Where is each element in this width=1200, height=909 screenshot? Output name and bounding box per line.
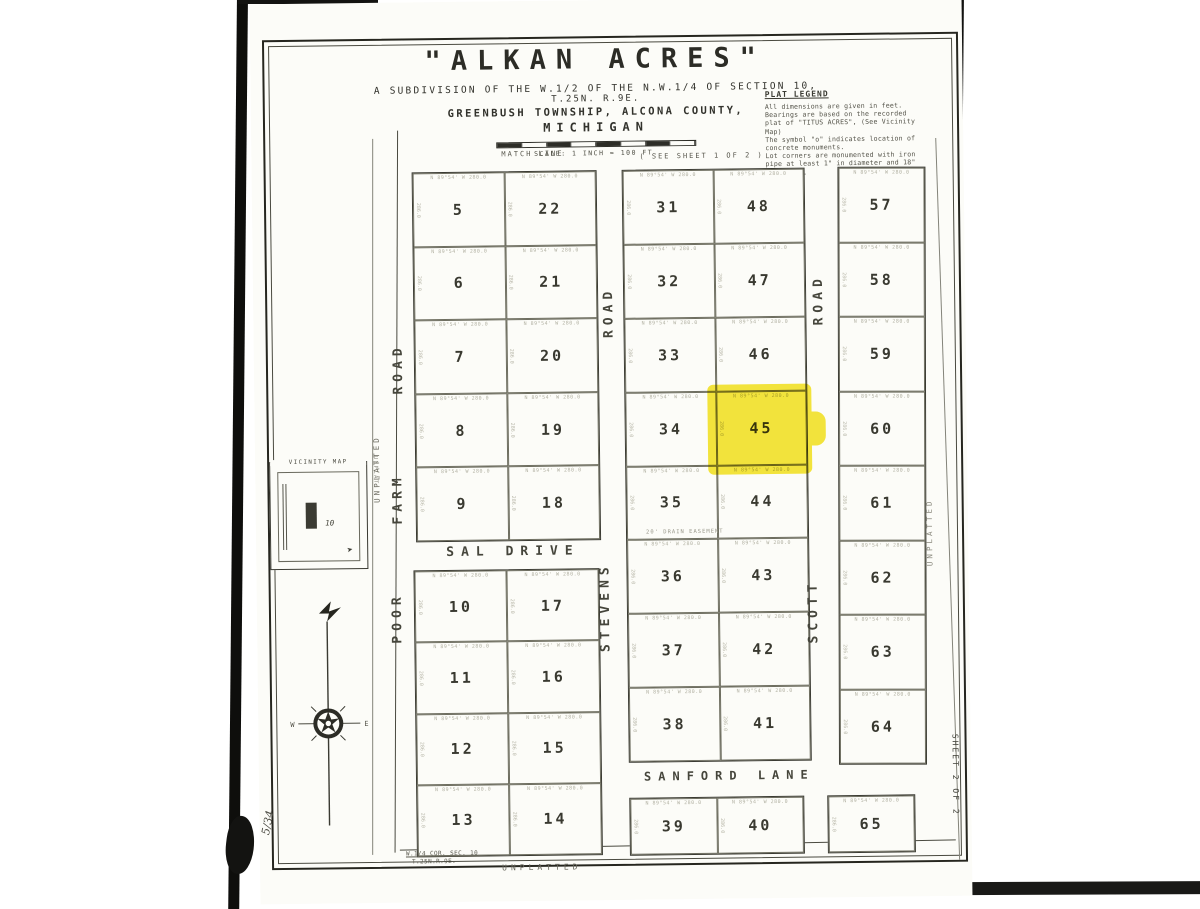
- survey-annotation: N 89°54' W 280.0: [715, 245, 804, 252]
- survey-annotation: N 89°54' W 280.0: [625, 246, 714, 253]
- survey-dimension: 286.0: [419, 497, 425, 512]
- survey-dimension: 286.0: [630, 643, 636, 658]
- survey-annotation: N 89°54' W 280.0: [507, 571, 597, 578]
- lot-block-right-bottom: N 89°54' W 280.0286.065: [827, 794, 916, 853]
- road-label-stevens-road: ROAD: [601, 276, 617, 338]
- vicinity-section-number: 10: [325, 518, 334, 527]
- unplatted-label-south: UNPLATTED: [502, 862, 581, 872]
- lot-cell-58: N 89°54' W 280.0286.058: [839, 242, 925, 317]
- survey-annotation: N 89°54' W 280.0: [417, 469, 507, 476]
- vicinity-arrow-icon: ➤: [346, 545, 354, 557]
- survey-dimension: 286.0: [842, 719, 848, 734]
- lot-cell-34: N 89°54' W 280.0286.034: [625, 391, 716, 466]
- survey-dimension: 286.0: [625, 200, 631, 215]
- survey-annotation: N 89°54' W 280.0: [840, 468, 924, 474]
- lot-cell-17: N 89°54' W 280.0286.017: [506, 569, 599, 641]
- lot-block-left-upper: N 89°54' W 280.0286.05N 89°54' W 280.028…: [412, 170, 602, 542]
- lot-cell-19: N 89°54' W 280.0286.019: [507, 392, 599, 467]
- lot-number: 22: [538, 199, 562, 217]
- lot-cell-13: N 89°54' W 280.0286.013: [417, 784, 510, 856]
- lot-cell-37: N 89°54' W 280.0286.037: [628, 613, 719, 688]
- quarter-corner-note: W.1/4 COR. SEC. 10: [406, 850, 478, 858]
- lot-cell-38: N 89°54' W 280.0286.038: [629, 687, 720, 762]
- survey-dimension: 286.0: [841, 197, 847, 212]
- survey-annotation: N 89°54' W 280.0: [841, 691, 925, 697]
- lot-cell-8: N 89°54' W 280.0286.08: [415, 393, 507, 468]
- lot-number: 42: [752, 640, 776, 658]
- subtitle-state: MICHIGAN: [361, 117, 831, 137]
- vicinity-map: VICINITY MAP 10 ➤ UNPLAT-: [269, 461, 368, 570]
- survey-annotation: N 89°54' W 280.0: [841, 617, 925, 623]
- survey-annotation: N 89°54' W 280.0: [505, 173, 595, 180]
- survey-annotation: N 89°54' W 280.0: [508, 394, 598, 401]
- lot-number: 18: [542, 494, 566, 512]
- survey-annotation: N 89°54' W 280.0: [415, 321, 505, 328]
- lot-cell-40: N 89°54' W 280.0286.040: [717, 797, 804, 854]
- lot-number: 46: [748, 345, 772, 363]
- lot-cell-39: N 89°54' W 280.0286.039: [630, 798, 717, 855]
- lot-number: 15: [542, 739, 566, 757]
- lot-number: 21: [539, 273, 563, 291]
- lot-cell-6: N 89°54' W 280.0286.06: [414, 246, 506, 321]
- survey-dimension: 286.0: [626, 274, 632, 289]
- lot-cell-14: N 89°54' W 280.0286.014: [509, 783, 602, 855]
- lot-number: 14: [543, 810, 567, 828]
- survey-dimension: 286.0: [508, 349, 514, 364]
- lot-number: 39: [662, 817, 686, 835]
- survey-annotation: N 89°54' W 280.0: [506, 247, 596, 254]
- plat-legend: PLAT LEGEND All dimensions are given in …: [765, 88, 946, 177]
- north-arrow-compass: W E: [275, 595, 388, 836]
- survey-dimension: 286.0: [841, 570, 847, 585]
- scan-edge-blob: [223, 815, 258, 876]
- lot-number: 5: [453, 201, 465, 219]
- see-sheet-label: ( SEE SHEET 1 OF 2 ): [639, 151, 763, 161]
- survey-dimension: 286.0: [417, 599, 423, 614]
- lot-number: 20: [540, 347, 564, 365]
- survey-annotation: N 89°54' W 280.0: [631, 800, 716, 807]
- lot-cell-36: N 89°54' W 280.0286.036: [627, 539, 718, 614]
- survey-annotation: N 89°54' W 280.0: [415, 248, 505, 255]
- sheet-number-label: SHEET 2 OF 2: [950, 734, 960, 834]
- lot-block-middle: N 89°54' W 280.0286.031N 89°54' W 280.02…: [622, 168, 812, 763]
- survey-dimension: 286.0: [841, 495, 847, 510]
- lot-number: 8: [455, 421, 467, 439]
- lot-number: 62: [870, 568, 894, 586]
- survey-annotation: N 89°54' W 280.0: [508, 642, 598, 649]
- vicinity-plat-location: [306, 503, 317, 529]
- road-label-stevens: STEVENS: [597, 552, 613, 652]
- lot-number: 36: [661, 567, 685, 585]
- lot-cell-9: N 89°54' W 280.0286.09: [416, 467, 508, 542]
- scan-edge-left-bar: [228, 0, 248, 909]
- survey-dimension: 286.0: [418, 671, 424, 686]
- lot-number: 61: [870, 494, 894, 512]
- survey-annotation: N 89°54' W 280.0: [625, 319, 714, 326]
- survey-annotation: N 89°54' W 280.0: [414, 174, 504, 181]
- plat-sheet: "ALKAN ACRES" A SUBDIVISION OF THE W.1/2…: [250, 0, 973, 904]
- survey-annotation: N 89°54' W 280.0: [418, 786, 508, 793]
- highlight-overlay: [707, 383, 813, 474]
- vicinity-map-drawing: 10 ➤: [277, 471, 360, 562]
- lot-number: 57: [869, 196, 893, 214]
- survey-dimension: 286.0: [627, 348, 633, 363]
- survey-annotation: N 89°54' W 280.0: [416, 644, 506, 651]
- title-block: "ALKAN ACRES" A SUBDIVISION OF THE W.1/2…: [360, 41, 831, 160]
- lot-cell-46: N 89°54' W 280.0286.046: [715, 316, 806, 391]
- survey-dimension: 286.0: [719, 818, 725, 833]
- survey-dimension: 286.0: [841, 346, 847, 361]
- lot-cell-41: N 89°54' W 280.0286.041: [719, 686, 810, 761]
- lot-block-middle-bottom: N 89°54' W 280.0286.039N 89°54' W 280.02…: [629, 796, 805, 856]
- survey-annotation: N 89°54' W 280.0: [510, 785, 600, 792]
- lot-number: 19: [541, 420, 565, 438]
- survey-annotation: N 89°54' W 280.0: [626, 393, 715, 400]
- scanned-plat-document: "ALKAN ACRES" A SUBDIVISION OF THE W.1/2…: [0, 0, 1200, 900]
- survey-dimension: 286.0: [629, 496, 635, 511]
- lot-cell-31: N 89°54' W 280.0286.031: [623, 170, 714, 245]
- lot-number: 32: [657, 272, 681, 290]
- lot-number: 37: [662, 641, 686, 659]
- road-label-farm: FARM: [390, 449, 406, 525]
- easement-note: 20' DRAIN EASEMENT: [646, 529, 724, 536]
- survey-dimension: 286.0: [716, 273, 722, 288]
- lot-cell-33: N 89°54' W 280.0286.033: [624, 317, 715, 392]
- lot-number: 47: [748, 271, 772, 289]
- survey-dimension: 286.0: [509, 598, 515, 613]
- svg-text:W: W: [290, 721, 295, 729]
- lot-cell-16: N 89°54' W 280.0286.016: [507, 640, 600, 712]
- lot-block-right: N 89°54' W 280.0286.057N 89°54' W 280.02…: [837, 167, 927, 765]
- survey-annotation: N 89°54' W 280.0: [840, 542, 924, 548]
- lot-number: 12: [451, 740, 475, 758]
- lot-cell-48: N 89°54' W 280.0286.048: [713, 169, 804, 244]
- road-label-poor: POOR: [389, 558, 405, 644]
- survey-dimension: 286.0: [416, 276, 422, 291]
- lot-cell-7: N 89°54' W 280.0286.07: [414, 319, 506, 394]
- lot-cell-11: N 89°54' W 280.0286.011: [415, 642, 508, 714]
- lot-cell-21: N 89°54' W 280.0286.021: [505, 245, 597, 320]
- survey-dimension: 286.0: [509, 422, 515, 437]
- lot-cell-57: N 89°54' W 280.0286.057: [838, 168, 924, 243]
- lot-cell-65: N 89°54' W 280.0286.065: [828, 795, 915, 852]
- lot-cell-32: N 89°54' W 280.0286.032: [623, 244, 714, 319]
- lot-number: 64: [871, 717, 895, 735]
- township-range-note: T.25N.R.9E.: [412, 858, 456, 866]
- survey-dimension: 286.0: [633, 819, 639, 834]
- survey-annotation: N 89°54' W 280.0: [629, 615, 718, 622]
- lot-number: 7: [454, 348, 466, 366]
- survey-annotation: N 89°54' W 280.0: [840, 319, 924, 325]
- lot-number: 60: [870, 419, 894, 437]
- lot-cell-64: N 89°54' W 280.0286.064: [840, 689, 926, 764]
- survey-annotation: N 89°54' W 280.0: [829, 797, 913, 804]
- survey-annotation: N 89°54' W 280.0: [840, 244, 924, 250]
- lot-cell-44: N 89°54' W 280.0286.044: [717, 464, 808, 539]
- lot-number: 48: [747, 197, 771, 215]
- legend-lines: All dimensions are given in feet.Bearing…: [765, 101, 946, 177]
- lot-number: 9: [456, 495, 468, 513]
- survey-annotation: N 89°54' W 280.0: [507, 320, 597, 327]
- survey-dimension: 286.0: [629, 569, 635, 584]
- survey-dimension: 286.0: [415, 203, 421, 218]
- compass-rose-icon: W E: [275, 595, 388, 836]
- survey-annotation: N 89°54' W 280.0: [630, 689, 719, 696]
- survey-annotation: N 89°54' W 280.0: [716, 318, 805, 325]
- legend-title: PLAT LEGEND: [765, 88, 945, 99]
- lot-number: 34: [659, 420, 683, 438]
- lot-number: 58: [870, 270, 894, 288]
- survey-dimension: 286.0: [722, 716, 728, 731]
- lot-number: 6: [454, 274, 466, 292]
- survey-annotation: N 89°54' W 280.0: [624, 172, 713, 179]
- survey-annotation: N 89°54' W 280.0: [627, 467, 716, 474]
- survey-dimension: 286.0: [721, 642, 727, 657]
- lot-cell-12: N 89°54' W 280.0286.012: [416, 713, 509, 785]
- survey-dimension: 286.0: [511, 741, 517, 756]
- lot-cell-45: N 89°54' W 280.0286.045: [716, 390, 807, 465]
- survey-dimension: 286.0: [628, 422, 634, 437]
- survey-annotation: N 89°54' W 280.0: [509, 714, 599, 721]
- survey-dimension: 286.0: [511, 812, 517, 827]
- road-label-sanford-lane: SANFORD LANE: [644, 768, 815, 784]
- survey-dimension: 286.0: [418, 423, 424, 438]
- lot-cell-42: N 89°54' W 280.0286.042: [718, 612, 809, 687]
- survey-dimension: 286.0: [719, 495, 725, 510]
- survey-dimension: 286.0: [720, 568, 726, 583]
- survey-dimension: 286.0: [417, 350, 423, 365]
- scale-bar: [496, 140, 696, 148]
- lot-number: 63: [871, 643, 895, 661]
- road-label-road-west: ROAD: [390, 319, 406, 395]
- lot-cell-22: N 89°54' W 280.0286.022: [504, 171, 596, 246]
- survey-dimension: 286.0: [715, 199, 721, 214]
- survey-annotation: N 89°54' W 280.0: [628, 541, 717, 548]
- survey-annotation: N 89°54' W 280.0: [840, 393, 924, 399]
- survey-dimension: 286.0: [717, 347, 723, 362]
- lot-number: 10: [449, 597, 473, 615]
- lot-cell-47: N 89°54' W 280.0286.047: [714, 242, 805, 317]
- survey-annotation: N 89°54' W 280.0: [719, 540, 808, 547]
- lot-number: 33: [658, 346, 682, 364]
- match-line-label: MATCH LINE: [501, 150, 563, 159]
- lot-cell-20: N 89°54' W 280.0286.020: [506, 318, 598, 393]
- vicinity-road-line: [282, 484, 287, 551]
- survey-dimension: 286.0: [506, 201, 512, 216]
- survey-dimension: 286.0: [419, 742, 425, 757]
- lot-number: 13: [451, 811, 475, 829]
- survey-annotation: N 89°54' W 280.0: [509, 468, 599, 475]
- survey-dimension: 286.0: [841, 421, 847, 436]
- lot-number: 38: [662, 715, 686, 733]
- lot-cell-43: N 89°54' W 280.0286.043: [718, 538, 809, 613]
- lot-number: 43: [751, 566, 775, 584]
- lot-cell-10: N 89°54' W 280.0286.010: [414, 570, 507, 642]
- vicinity-side-label: UNPLAT-: [372, 456, 379, 516]
- lot-cell-5: N 89°54' W 280.0286.05: [413, 172, 505, 247]
- lot-block-left-lower: N 89°54' W 280.0286.010N 89°54' W 280.02…: [413, 568, 602, 857]
- survey-annotation: N 89°54' W 280.0: [839, 170, 923, 176]
- svg-text:E: E: [364, 720, 368, 728]
- survey-annotation: N 89°54' W 280.0: [416, 395, 506, 402]
- survey-dimension: 286.0: [631, 717, 637, 732]
- lot-cell-18: N 89°54' W 280.0286.018: [508, 466, 600, 541]
- lot-cell-63: N 89°54' W 280.0286.063: [840, 615, 926, 690]
- survey-dimension: 286.0: [842, 644, 848, 659]
- survey-annotation: N 89°54' W 280.0: [720, 614, 809, 621]
- lot-number: 17: [541, 596, 565, 614]
- survey-dimension: 286.0: [830, 817, 836, 832]
- survey-annotation: N 89°54' W 280.0: [714, 171, 803, 178]
- survey-annotation: N 89°54' W 280.0: [718, 799, 803, 806]
- lot-cell-60: N 89°54' W 280.0286.060: [839, 391, 925, 466]
- lot-number: 59: [870, 345, 894, 363]
- lot-number: 65: [859, 815, 883, 833]
- page-title: "ALKAN ACRES": [360, 41, 830, 78]
- survey-annotation: N 89°54' W 280.0: [417, 715, 507, 722]
- survey-annotation: N 89°54' W 280.0: [415, 572, 505, 579]
- survey-annotation: N 89°54' W 280.0: [720, 688, 809, 695]
- vicinity-map-title: VICINITY MAP: [270, 459, 366, 466]
- lot-number: 44: [750, 492, 774, 510]
- road-label-sal-drive: SAL DRIVE: [446, 543, 580, 560]
- lot-number: 40: [748, 816, 772, 834]
- lot-number: 16: [542, 667, 566, 685]
- lot-cell-61: N 89°54' W 280.0286.061: [839, 466, 925, 541]
- lot-cell-59: N 89°54' W 280.0286.059: [839, 317, 925, 392]
- survey-dimension: 286.0: [841, 272, 847, 287]
- survey-dimension: 286.0: [507, 275, 513, 290]
- lot-number: 41: [753, 714, 777, 732]
- survey-dimension: 286.0: [419, 813, 425, 828]
- survey-dimension: 286.0: [510, 496, 516, 511]
- lot-number: 35: [660, 494, 684, 512]
- road-label-scott: SCOTT: [805, 553, 821, 643]
- unplatted-label-east: UNPLATTED: [924, 448, 934, 566]
- lot-number: 11: [450, 669, 474, 687]
- lot-number: 31: [656, 198, 680, 216]
- lot-cell-62: N 89°54' W 280.0286.062: [839, 540, 925, 615]
- survey-dimension: 286.0: [510, 670, 516, 685]
- lot-cell-15: N 89°54' W 280.0286.015: [508, 712, 601, 784]
- road-label-scott-road: ROAD: [811, 259, 827, 325]
